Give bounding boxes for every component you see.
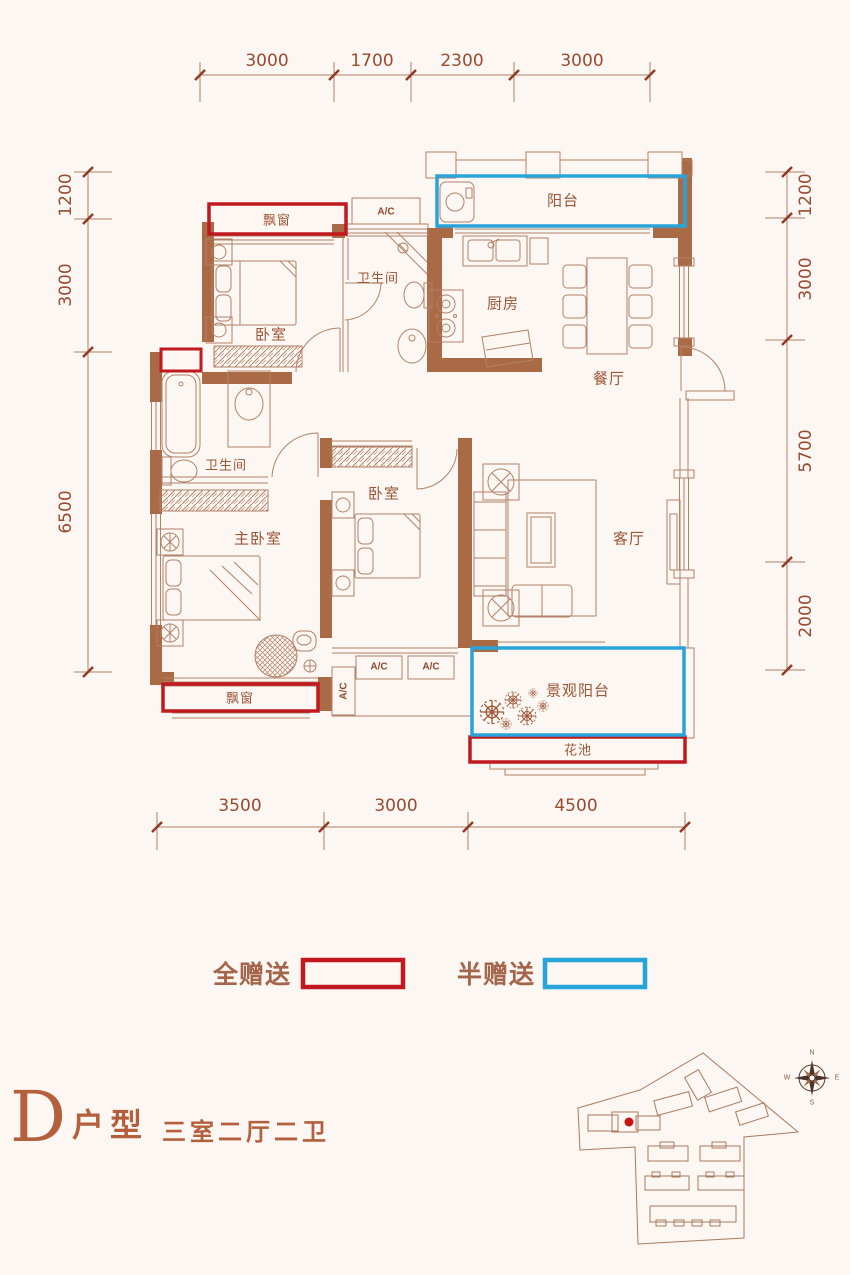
- room-label-bathroom-top: 卫生间: [357, 268, 399, 287]
- dim-right-4: 2000: [796, 594, 816, 637]
- dim-left-3: 6500: [56, 490, 76, 533]
- floorplan-page: 3000 1700 2300 3000 3500 3000 4500 1200 …: [0, 0, 850, 1275]
- room-label-living: 客厅: [613, 528, 645, 549]
- dim-right-3: 5700: [796, 429, 816, 472]
- room-label-bay-window-top: 飘窗: [263, 210, 291, 229]
- room-label-scenic-balcony: 景观阳台: [546, 680, 610, 701]
- compass-east-label: E: [835, 1075, 840, 1082]
- dim-right-2: 3000: [796, 257, 816, 300]
- room-label-dining: 餐厅: [593, 368, 625, 389]
- legend-full-gift-swatch: [303, 960, 403, 987]
- unit-spec-label: 三室二厅二卫: [162, 1112, 330, 1147]
- compass-icon: [794, 1060, 830, 1096]
- room-label-kitchen: 厨房: [487, 293, 519, 314]
- room-label-master-bedroom: 主卧室: [234, 528, 282, 549]
- dim-top-2: 1700: [350, 51, 393, 71]
- unit-type-label: 户型: [72, 1100, 148, 1146]
- dim-right-1: 1200: [796, 173, 816, 216]
- room-label-bedroom-mid: 卧室: [368, 483, 400, 504]
- dim-left-2: 3000: [56, 263, 76, 306]
- walls: [150, 158, 692, 711]
- site-plan: [578, 1053, 798, 1244]
- room-label-bay-window-bottom: 飘窗: [226, 688, 254, 707]
- compass-north-label: N: [809, 1050, 814, 1057]
- room-label-ac-bottom-vertical: A/C: [339, 682, 350, 699]
- left-small-gift-box: [161, 349, 201, 371]
- dim-top-3: 2300: [440, 51, 483, 71]
- room-label-ac-bottom-1: A/C: [370, 662, 387, 673]
- legend-half-gift-label: 半赠送: [457, 955, 535, 991]
- legend-half-gift-swatch: [545, 960, 645, 987]
- room-label-ac-top: A/C: [377, 207, 394, 218]
- room-label-flower-bed: 花池: [564, 740, 592, 759]
- room-label-ac-bottom-2: A/C: [422, 662, 439, 673]
- dimension-lines: [74, 62, 805, 850]
- unit-location-marker: [625, 1118, 634, 1127]
- room-label-bathroom-left: 卫生间: [205, 455, 247, 474]
- compass-south-label: S: [810, 1100, 815, 1107]
- dim-bottom-1: 3500: [218, 796, 261, 816]
- legend-full-gift-label: 全赠送: [213, 955, 291, 991]
- unit-type-letter: D: [10, 1082, 66, 1152]
- title-block: D 户型 三室二厅二卫: [10, 1082, 430, 1162]
- dim-left-1: 1200: [56, 173, 76, 216]
- dim-top-4: 3000: [560, 51, 603, 71]
- room-label-bedroom-top: 卧室: [255, 324, 287, 345]
- room-label-balcony: 阳台: [547, 190, 579, 211]
- dim-bottom-2: 3000: [374, 796, 417, 816]
- dim-top-1: 3000: [245, 51, 288, 71]
- compass-west-label: W: [784, 1075, 791, 1082]
- dim-bottom-3: 4500: [554, 796, 597, 816]
